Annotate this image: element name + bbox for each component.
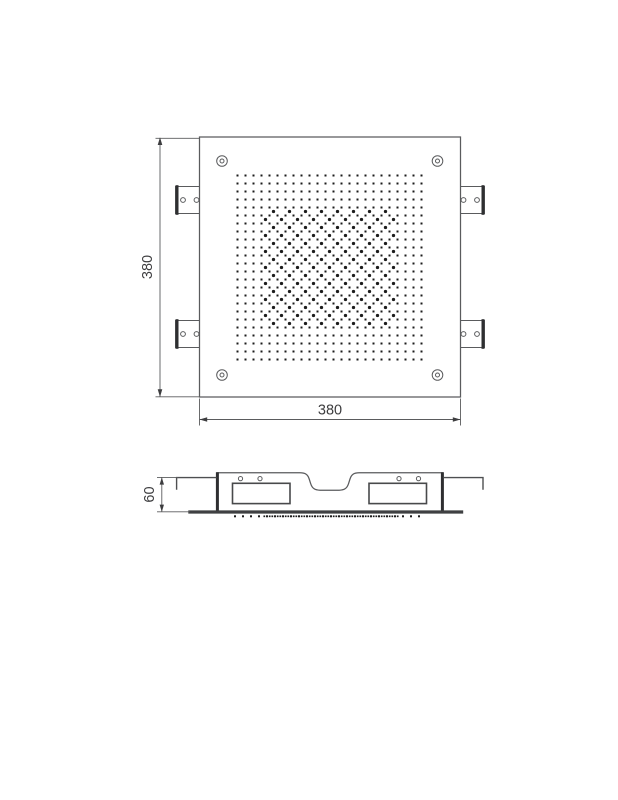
nozzle-dot [272,210,275,213]
nozzle-dot [293,207,295,209]
nozzle-dot [285,319,287,321]
nozzle-dot [397,231,399,233]
nozzle-dot [285,343,287,345]
nozzle-dot [301,231,303,233]
nozzle-dot [373,223,375,225]
nozzle-dot [287,515,289,517]
nozzle-dot [277,515,279,517]
nozzle-dot [325,263,327,265]
nozzle-dot [325,327,327,329]
nozzle-dot [384,242,387,245]
nozzle-dot [365,215,367,217]
nozzle-dot [405,327,407,329]
nozzle-dot [288,210,291,213]
nozzle-dot [325,295,327,297]
nozzle-dot [312,266,315,269]
screw-icon [432,156,443,167]
nozzle-dot [261,231,263,233]
nozzle-dot [269,215,271,217]
nozzle-dot [317,515,319,517]
nozzle-dot [365,247,367,249]
nozzle-dot [352,290,355,293]
nozzle-dot [272,258,275,261]
nozzle-dot [245,199,247,201]
nozzle-dot [376,298,379,301]
nozzle-dot [357,311,359,313]
nozzle-dot [237,327,239,329]
nozzle-dot [304,210,307,213]
nozzle-dot [357,183,359,185]
nozzle-dot [277,223,279,225]
nozzle-dot [333,279,335,281]
nozzle-dot [296,314,299,317]
nozzle-dot [373,175,375,177]
flange-left [177,478,217,490]
nozzle-dot [352,210,355,213]
nozzle-dot [413,247,415,249]
nozzle-dot [421,295,423,297]
nozzle-dot [245,271,247,273]
nozzle-dot [253,215,255,217]
nozzle-dot [320,226,323,229]
nozzle-dot [381,343,383,345]
nozzle-dot [341,303,343,305]
nozzle-dot [304,306,307,309]
nozzle-dot [365,191,367,193]
nozzle-dot [261,239,263,241]
nozzle-dot [245,175,247,177]
mounting-bracket-top-right [461,185,485,215]
nozzle-dot [301,319,303,321]
nozzle-dot [293,343,295,345]
nozzle-dot [349,287,351,289]
nozzle-dot [253,303,255,305]
nozzle-dot [389,279,391,281]
nozzle-dot [368,242,371,245]
nozzle-dot [269,247,271,249]
nozzle-dot [349,247,351,249]
nozzle-dot [303,515,305,517]
nozzle-dot [253,327,255,329]
nozzle-dot [295,515,297,517]
dim-label-top-width: 380 [318,403,342,419]
dim-label-top-height: 380 [140,255,156,279]
bracket-tab [176,321,200,348]
nozzle-dot [245,279,247,281]
nozzle-dot [389,287,391,289]
nozzle-dot [272,226,275,229]
nozzle-dot [373,319,375,321]
nozzle-dot [405,279,407,281]
nozzle-dot [405,183,407,185]
nozzle-dot [357,199,359,201]
nozzle-dot [285,215,287,217]
nozzle-dot [250,515,252,517]
nozzle-dot [301,343,303,345]
nozzle-dot [277,207,279,209]
nozzle-dot [344,234,347,237]
nozzle-dot [333,271,335,273]
nozzle-dot [373,351,375,353]
nozzle-dot [253,359,255,361]
nozzle-dot [389,335,391,337]
nozzle-dot [320,210,323,213]
side-view: 60 [142,472,483,517]
nozzle-dot [397,247,399,249]
nozzle-dot [277,279,279,281]
nozzle-dot [312,234,315,237]
nozzle-dot [309,287,311,289]
nozzle-dot [317,191,319,193]
nozzle-dot [375,515,377,517]
nozzle-dot [413,359,415,361]
nozzle-dot [397,351,399,353]
nozzle-dot [261,223,263,225]
nozzle-dot [261,263,263,265]
nozzle-dot [333,515,335,517]
nozzle-dot [245,351,247,353]
nozzle-dot [376,218,379,221]
nozzle-dot [360,218,363,221]
nozzle-dot [389,191,391,193]
nozzle-dot [253,199,255,201]
nozzle-dot [344,298,347,301]
nozzle-dot [319,515,321,517]
nozzle-dot [341,271,343,273]
nozzle-dot [277,247,279,249]
nozzle-dot [352,226,355,229]
nozzle-dot [381,231,383,233]
nozzle-dot [384,290,387,293]
nozzle-dot [349,215,351,217]
nozzle-dot [421,175,423,177]
nozzle-dot [343,515,345,517]
nozzle-dot [357,515,359,517]
nozzle-dot [317,303,319,305]
nozzle-dot [349,343,351,345]
nozzle-dot [357,255,359,257]
nozzle-dot [378,515,380,517]
nozzle-dot [293,231,295,233]
nozzle-dot [325,247,327,249]
nozzle-dot [317,231,319,233]
nozzle-dot [333,263,335,265]
nozzle-dot [421,343,423,345]
nozzle-dot [309,271,311,273]
nozzle-dot [418,515,420,517]
nozzle-dot [245,311,247,313]
nozzle-dot [253,175,255,177]
nozzle-dot [253,343,255,345]
nozzle-dot [360,282,363,285]
nozzle-dot [325,343,327,345]
nozzle-dot [285,335,287,337]
nozzle-dot [280,250,283,253]
bracket-hole [181,198,186,203]
nozzle-dot [341,351,343,353]
nozzle-dot [373,287,375,289]
nozzle-dot [357,359,359,361]
nozzle-dot [365,175,367,177]
nozzle-dot [381,515,383,517]
nozzle-dot [317,215,319,217]
nozzle-dot [301,191,303,193]
nozzle-dot [301,335,303,337]
nozzle-dot [301,175,303,177]
nozzle-dot [237,247,239,249]
nozzle-dot [261,359,263,361]
nozzle-dot [359,515,361,517]
nozzle-dot [264,250,267,253]
nozzle-dot [293,319,295,321]
mounting-bracket-top-left [176,185,200,215]
nozzle-dot [301,327,303,329]
nozzle-dot [381,191,383,193]
nozzle-dot [344,218,347,221]
bracket-hole [181,332,186,337]
nozzle-dot [357,279,359,281]
nozzle-dot [298,515,300,517]
nozzle-dot [245,215,247,217]
nozzle-dot [301,223,303,225]
nozzle-dot [373,271,375,273]
nozzle-dot [314,515,316,517]
nozzle-dot [365,295,367,297]
nozzle-dot [328,234,331,237]
nozzle-dot [349,359,351,361]
nozzle-dot [365,351,367,353]
nozzle-dot [269,351,271,353]
nozzle-dot [320,322,323,325]
nozzle-dot [285,247,287,249]
nozzle-dot [269,327,271,329]
nozzle-dot [277,175,279,177]
nozzle-dot [309,335,311,337]
nozzle-dot [352,242,355,245]
nozzle-dot [317,335,319,337]
nozzle-dot [325,271,327,273]
nozzle-dot [261,343,263,345]
nozzle-dot [269,255,271,257]
nozzle-dot [237,263,239,265]
nozzle-dot [328,266,331,269]
nozzle-dot [360,314,363,317]
nozzle-dot [384,258,387,261]
nozzle-dot [301,515,303,517]
nozzle-dot [309,247,311,249]
nozzle-dot [336,226,339,229]
nozzle-dot [320,306,323,309]
nozzle-dot [333,359,335,361]
nozzle-dot [336,274,339,277]
nozzle-dot [237,295,239,297]
nozzle-dot [381,239,383,241]
nozzle-dot [309,515,311,517]
nozzle-dot [381,327,383,329]
nozzle-dot [336,210,339,213]
nozzle-dot [253,319,255,321]
nozzle-dot [352,258,355,261]
nozzle-dot [320,258,323,261]
nozzle-dot [381,183,383,185]
nozzle-dot [357,215,359,217]
nozzle-dot [333,255,335,257]
nozzle-dot [362,515,364,517]
nozzle-dot [357,351,359,353]
nozzle-dot [349,271,351,273]
nozzle-dot [293,191,295,193]
nozzle-dot [333,247,335,249]
nozzle-dot [373,359,375,361]
nozzle-dot [317,319,319,321]
nozzle-dot [405,255,407,257]
nozzle-dot [309,207,311,209]
nozzle-dot [269,303,271,305]
nozzle-dot [333,343,335,345]
nozzle-dot [397,359,399,361]
nozzle-dot [413,199,415,201]
nozzle-dot [341,359,343,361]
nozzle-dot [285,223,287,225]
nozzle-dot [317,207,319,209]
nozzle-dot [333,303,335,305]
nozzle-dot [237,223,239,225]
bracket-tab [461,187,485,214]
nozzle-dot [389,263,391,265]
nozzle-dot [421,303,423,305]
nozzle-dot [346,515,348,517]
nozzle-dot [368,290,371,293]
nozzle-dot [381,279,383,281]
nozzle-dot [376,282,379,285]
bracket-hole [475,198,480,203]
nozzle-dot [253,311,255,313]
nozzle-dot [373,515,375,517]
nozzle-dot [264,314,267,317]
nozzle-dot [392,250,395,253]
nozzle-dot [405,223,407,225]
nozzle-dot [405,207,407,209]
nozzle-dot [335,515,337,517]
nozzle-dot [376,266,379,269]
nozzle-dot [328,282,331,285]
nozzle-dot [397,191,399,193]
nozzle-dot [293,311,295,313]
nozzle-dot [397,207,399,209]
nozzle-dot [301,247,303,249]
nozzle-dot [317,311,319,313]
nozzle-dot [285,515,287,517]
nozzle-dot [245,263,247,265]
nozzle-dot [405,191,407,193]
nozzle-dot [413,175,415,177]
nozzle-dot [237,319,239,321]
nozzle-dot [389,359,391,361]
nozzle-dot [413,327,415,329]
nozzle-dot [301,255,303,257]
nozzle-dot [309,231,311,233]
nozzle-dot [421,279,423,281]
nozzle-dot [341,335,343,337]
nozzle-dot [349,263,351,265]
nozzle-dot [245,295,247,297]
nozzle-dot [386,515,388,517]
nozzle-dot [421,287,423,289]
nozzle-dot [327,515,329,517]
nozzle-dot [269,223,271,225]
nozzle-dot [285,311,287,313]
nozzle-dot [253,287,255,289]
nozzle-dot [309,191,311,193]
nozzle-dot [317,351,319,353]
nozzle-dot [269,199,271,201]
nozzle-dot [349,231,351,233]
nozzle-dot [304,226,307,229]
nozzle-dot [293,359,295,361]
nozzle-dot [253,183,255,185]
nozzle-dot [381,263,383,265]
nozzle-dot [389,327,391,329]
nozzle-dot [293,215,295,217]
nozzle-dot [421,351,423,353]
nozzle-dot [296,298,299,301]
nozzle-dot [317,239,319,241]
nozzle-dot [333,319,335,321]
nozzle-dot [349,327,351,329]
nozzle-dot [357,295,359,297]
nozzle-dot [397,287,399,289]
nozzle-dot [381,287,383,289]
nozzle-dot [269,191,271,193]
nozzle-dot [410,515,412,517]
nozzle-dot [389,271,391,273]
nozzle-dot [333,183,335,185]
nozzle-dot [389,311,391,313]
nozzle-dot [381,255,383,257]
nozzle-dot [309,311,311,313]
nozzle-dot [354,515,356,517]
nozzle-dot [277,191,279,193]
nozzle-dot [421,263,423,265]
nozzle-dot [309,223,311,225]
nozzle-dot [333,327,335,329]
nozzle-dot [325,335,327,337]
nozzle-dot [296,218,299,221]
nozzle-dot [365,231,367,233]
nozzle-dot [413,319,415,321]
nozzle-dot [253,279,255,281]
hole [397,477,401,481]
nozzle-dot [405,239,407,241]
nozzle-dot [309,263,311,265]
nozzle-dot [317,343,319,345]
nozzle-dot [296,250,299,253]
nozzle-dot [392,314,395,317]
nozzle-dot [296,266,299,269]
nozzle-dot [397,175,399,177]
nozzle-dot [325,287,327,289]
nozzle-dot [285,175,287,177]
nozzle-dot [349,515,351,517]
nozzle-dot [413,287,415,289]
nozzle-dot [397,223,399,225]
nozzle-dot [333,335,335,337]
nozzle-dot [341,207,343,209]
nozzle-dot [288,306,291,309]
nozzle-dot [266,515,268,517]
nozzle-dot [282,515,284,517]
nozzle-dot [413,311,415,313]
